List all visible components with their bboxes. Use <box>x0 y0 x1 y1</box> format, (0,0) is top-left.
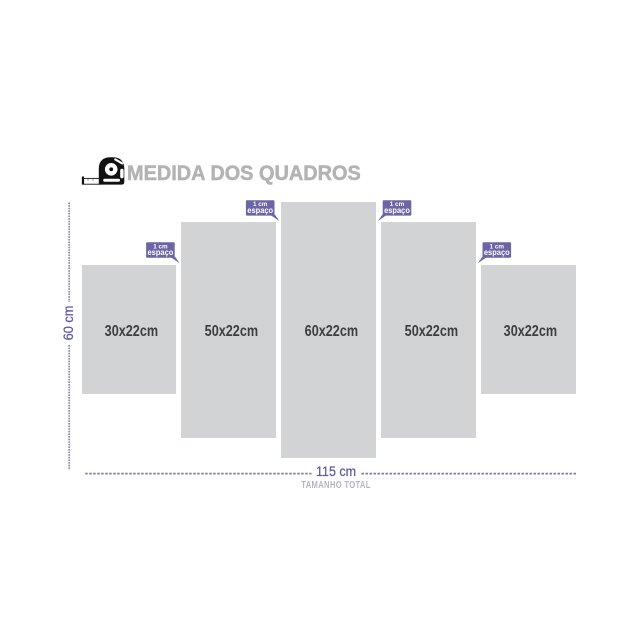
svg-text:espaço: espaço <box>148 247 174 257</box>
svg-text:espaço: espaço <box>384 205 410 215</box>
svg-text:espaço: espaço <box>247 205 273 215</box>
svg-text:espaço: espaço <box>484 247 510 257</box>
